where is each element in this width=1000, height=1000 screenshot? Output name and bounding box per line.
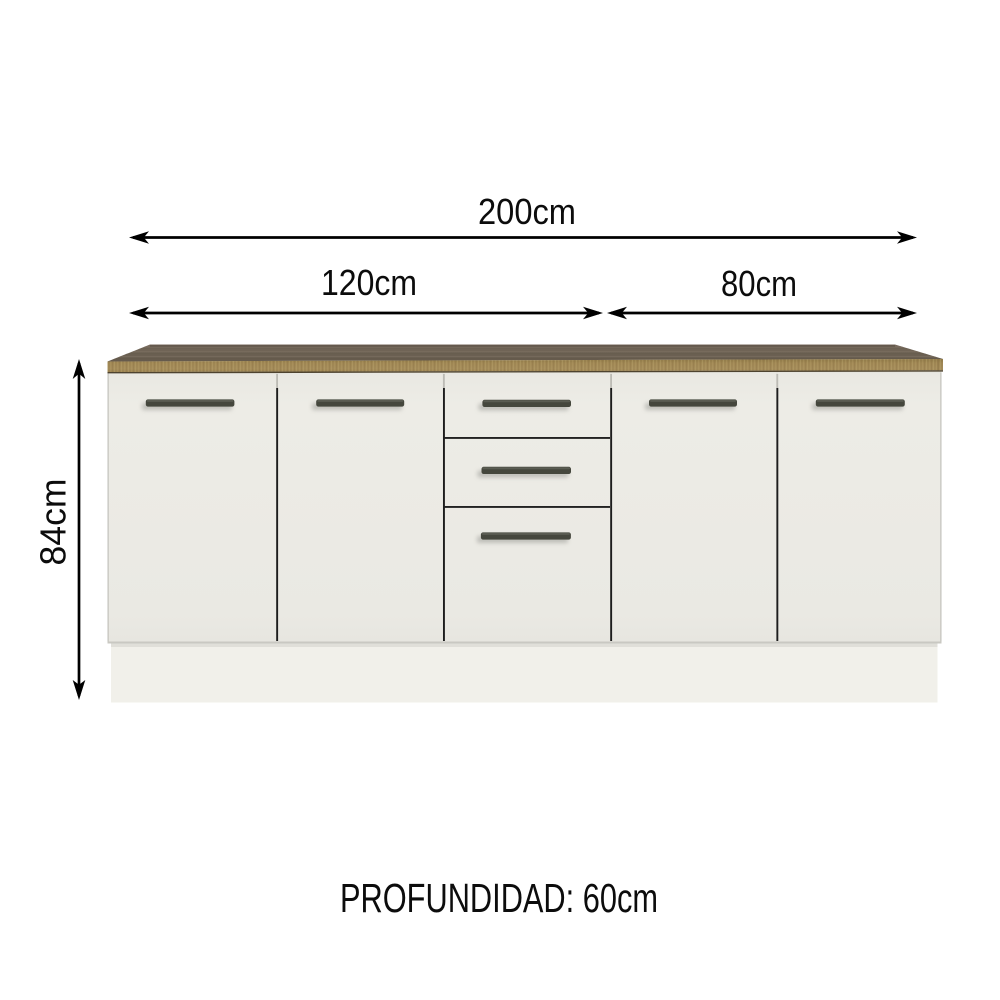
svg-text:80cm: 80cm (721, 263, 797, 304)
svg-text:120cm: 120cm (321, 262, 417, 303)
svg-text:200cm: 200cm (478, 191, 576, 232)
svg-text:PROFUNDIDAD: 60cm: PROFUNDIDAD: 60cm (340, 875, 658, 921)
svg-text:84cm: 84cm (33, 479, 74, 566)
